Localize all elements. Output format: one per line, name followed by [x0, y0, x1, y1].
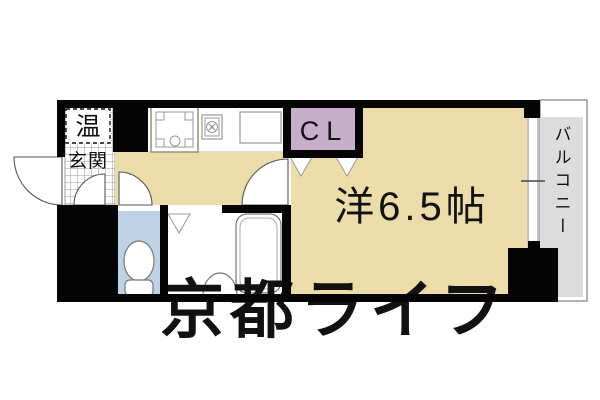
counter-icon	[240, 112, 281, 143]
wall-kitchen-left	[113, 108, 148, 152]
wall-top-right-stub	[524, 100, 540, 118]
wall-bath-top	[222, 205, 282, 213]
floorplan-svg: 温 玄関 SB CL 洋6.5帖 バルコニー 京都ライフ	[0, 0, 600, 400]
kitchen-sink-icon	[151, 107, 198, 152]
wall-bottom	[57, 294, 510, 302]
wall-left-upper	[57, 100, 65, 157]
watermark: 京都ライフ	[160, 274, 510, 346]
wall-shoebox-block	[57, 205, 118, 302]
closet-label: CL	[300, 116, 349, 146]
balcony-label: バルコニー	[552, 125, 571, 240]
main-room-label: 洋6.5帖	[334, 185, 490, 229]
water-heater-label: 温	[75, 113, 100, 141]
front-door-swing	[14, 157, 62, 205]
wall-closet-bottom	[283, 150, 363, 158]
wall-bath-room	[282, 205, 291, 302]
toilet-threshold	[118, 205, 160, 211]
floorplan-image: 温 玄関 SB CL 洋6.5帖 バルコニー 京都ライフ	[0, 0, 600, 400]
wall-toilet-bath	[160, 205, 168, 302]
wall-pillar-stub	[528, 241, 540, 250]
entrance-label: 玄関	[68, 150, 108, 172]
wall-pillar	[508, 248, 558, 302]
wall-top	[57, 100, 540, 108]
toilet-icon	[124, 241, 154, 296]
stove-icon	[202, 115, 222, 139]
